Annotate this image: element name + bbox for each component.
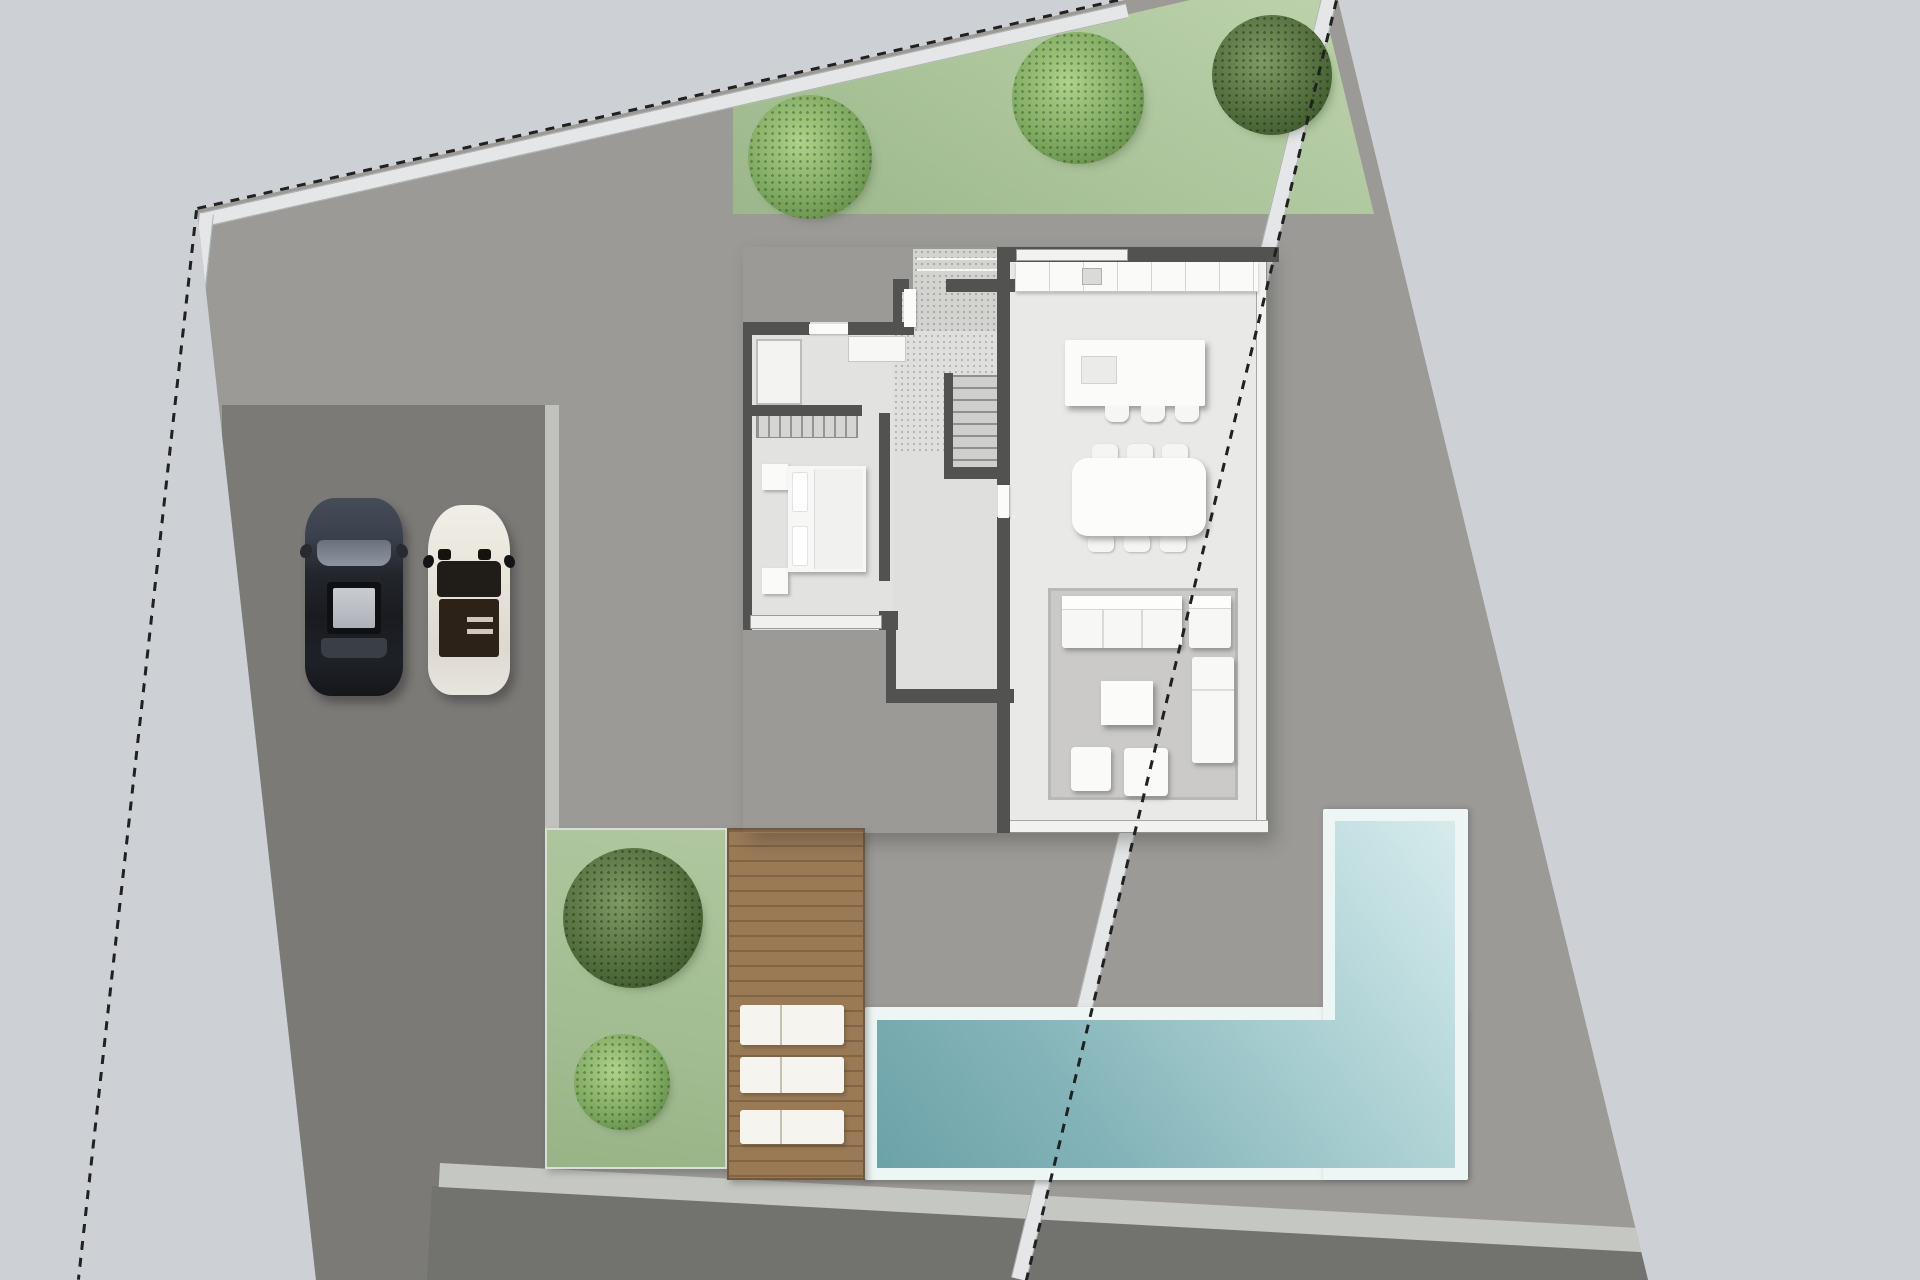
dining-chair xyxy=(1160,534,1186,552)
car-dark-sunroof xyxy=(333,588,375,628)
bed-pillow xyxy=(792,472,808,512)
tree-light xyxy=(1012,32,1144,164)
dining-chair xyxy=(1124,534,1150,552)
tree-foliage xyxy=(748,95,872,219)
fence-left xyxy=(82,213,214,1278)
door-leaf-front xyxy=(904,289,916,327)
tree-foliage xyxy=(1212,15,1332,135)
bed-blanket xyxy=(814,469,863,569)
tree-dark xyxy=(563,848,703,988)
car-dark-windshield xyxy=(317,540,391,566)
tree-foliage xyxy=(1012,32,1144,164)
glass-wall-bottom xyxy=(1010,820,1268,833)
car-dark-rear-window xyxy=(321,638,387,658)
glass-wall-right xyxy=(1256,262,1267,833)
tree-light xyxy=(748,95,872,219)
car-white-headrest xyxy=(478,549,491,560)
tree-foliage xyxy=(574,1034,670,1130)
sofa-seam xyxy=(1141,610,1143,648)
wall xyxy=(743,322,810,335)
island-hob xyxy=(1081,356,1117,384)
lounger-seam xyxy=(780,1057,782,1093)
bedroom-window-band xyxy=(750,615,882,629)
wall xyxy=(944,467,1010,479)
car-white-cabin xyxy=(439,599,499,657)
vanity xyxy=(848,336,906,362)
car-white-windshield xyxy=(437,561,501,597)
porch-step-line xyxy=(917,269,1007,271)
coffee-table xyxy=(1101,681,1153,725)
bar-stool xyxy=(1105,406,1129,422)
lounger-seam xyxy=(780,1110,782,1144)
tree-light xyxy=(574,1034,670,1130)
dining-table xyxy=(1072,458,1206,536)
door-leaf-hall xyxy=(998,485,1009,518)
sofa xyxy=(1062,596,1182,648)
site-plan xyxy=(0,0,1920,1280)
wall xyxy=(997,689,1010,833)
door-leaf-bathroom xyxy=(809,324,848,334)
car-seat-detail xyxy=(467,617,493,622)
nightstand xyxy=(762,568,788,594)
shower xyxy=(756,339,802,405)
armchair-back xyxy=(1189,596,1231,609)
plot-area xyxy=(0,0,1920,1280)
wall xyxy=(997,247,1010,485)
car-mirror xyxy=(504,555,515,568)
kitchen-window-band xyxy=(1016,249,1128,261)
wall xyxy=(886,689,1014,703)
chaise-seam xyxy=(1192,689,1234,691)
armchair xyxy=(1189,596,1231,648)
car-seat-detail xyxy=(467,629,493,634)
bed-pillow xyxy=(792,526,808,566)
porch-step-line xyxy=(917,258,1007,260)
wall xyxy=(743,322,752,630)
pool-water xyxy=(877,821,1455,1168)
bar-stool xyxy=(1175,406,1199,422)
sofa-back xyxy=(1062,596,1182,610)
lounger-seam xyxy=(780,1005,782,1045)
kitchen-counter xyxy=(1016,262,1258,292)
sun-lounger xyxy=(740,1110,844,1144)
chaise-longue xyxy=(1192,657,1234,763)
kitchen-sink xyxy=(1082,268,1102,285)
floor-hall xyxy=(893,291,1014,692)
nightstand xyxy=(762,464,788,490)
wall xyxy=(893,289,902,333)
sun-lounger xyxy=(740,1057,844,1093)
kitchen-island xyxy=(1065,340,1205,424)
driveway-edge-strip xyxy=(545,405,559,829)
car-white-headrest xyxy=(438,549,451,560)
boundary-dash-left xyxy=(77,210,198,1280)
tree-dark xyxy=(1212,15,1332,135)
bed xyxy=(788,466,866,572)
dining-chair xyxy=(1088,534,1114,552)
tree-foliage xyxy=(563,848,703,988)
dining-set xyxy=(1072,444,1206,552)
wall xyxy=(743,405,862,416)
pouf xyxy=(1071,747,1111,791)
sofa-seam xyxy=(1102,610,1104,648)
car-mirror xyxy=(396,544,408,558)
car-dark xyxy=(305,498,403,696)
sun-lounger xyxy=(740,1005,844,1045)
bar-stool xyxy=(1141,406,1165,422)
wall xyxy=(944,373,953,475)
car-white xyxy=(428,505,510,695)
wall xyxy=(997,517,1010,692)
wall xyxy=(879,413,890,581)
